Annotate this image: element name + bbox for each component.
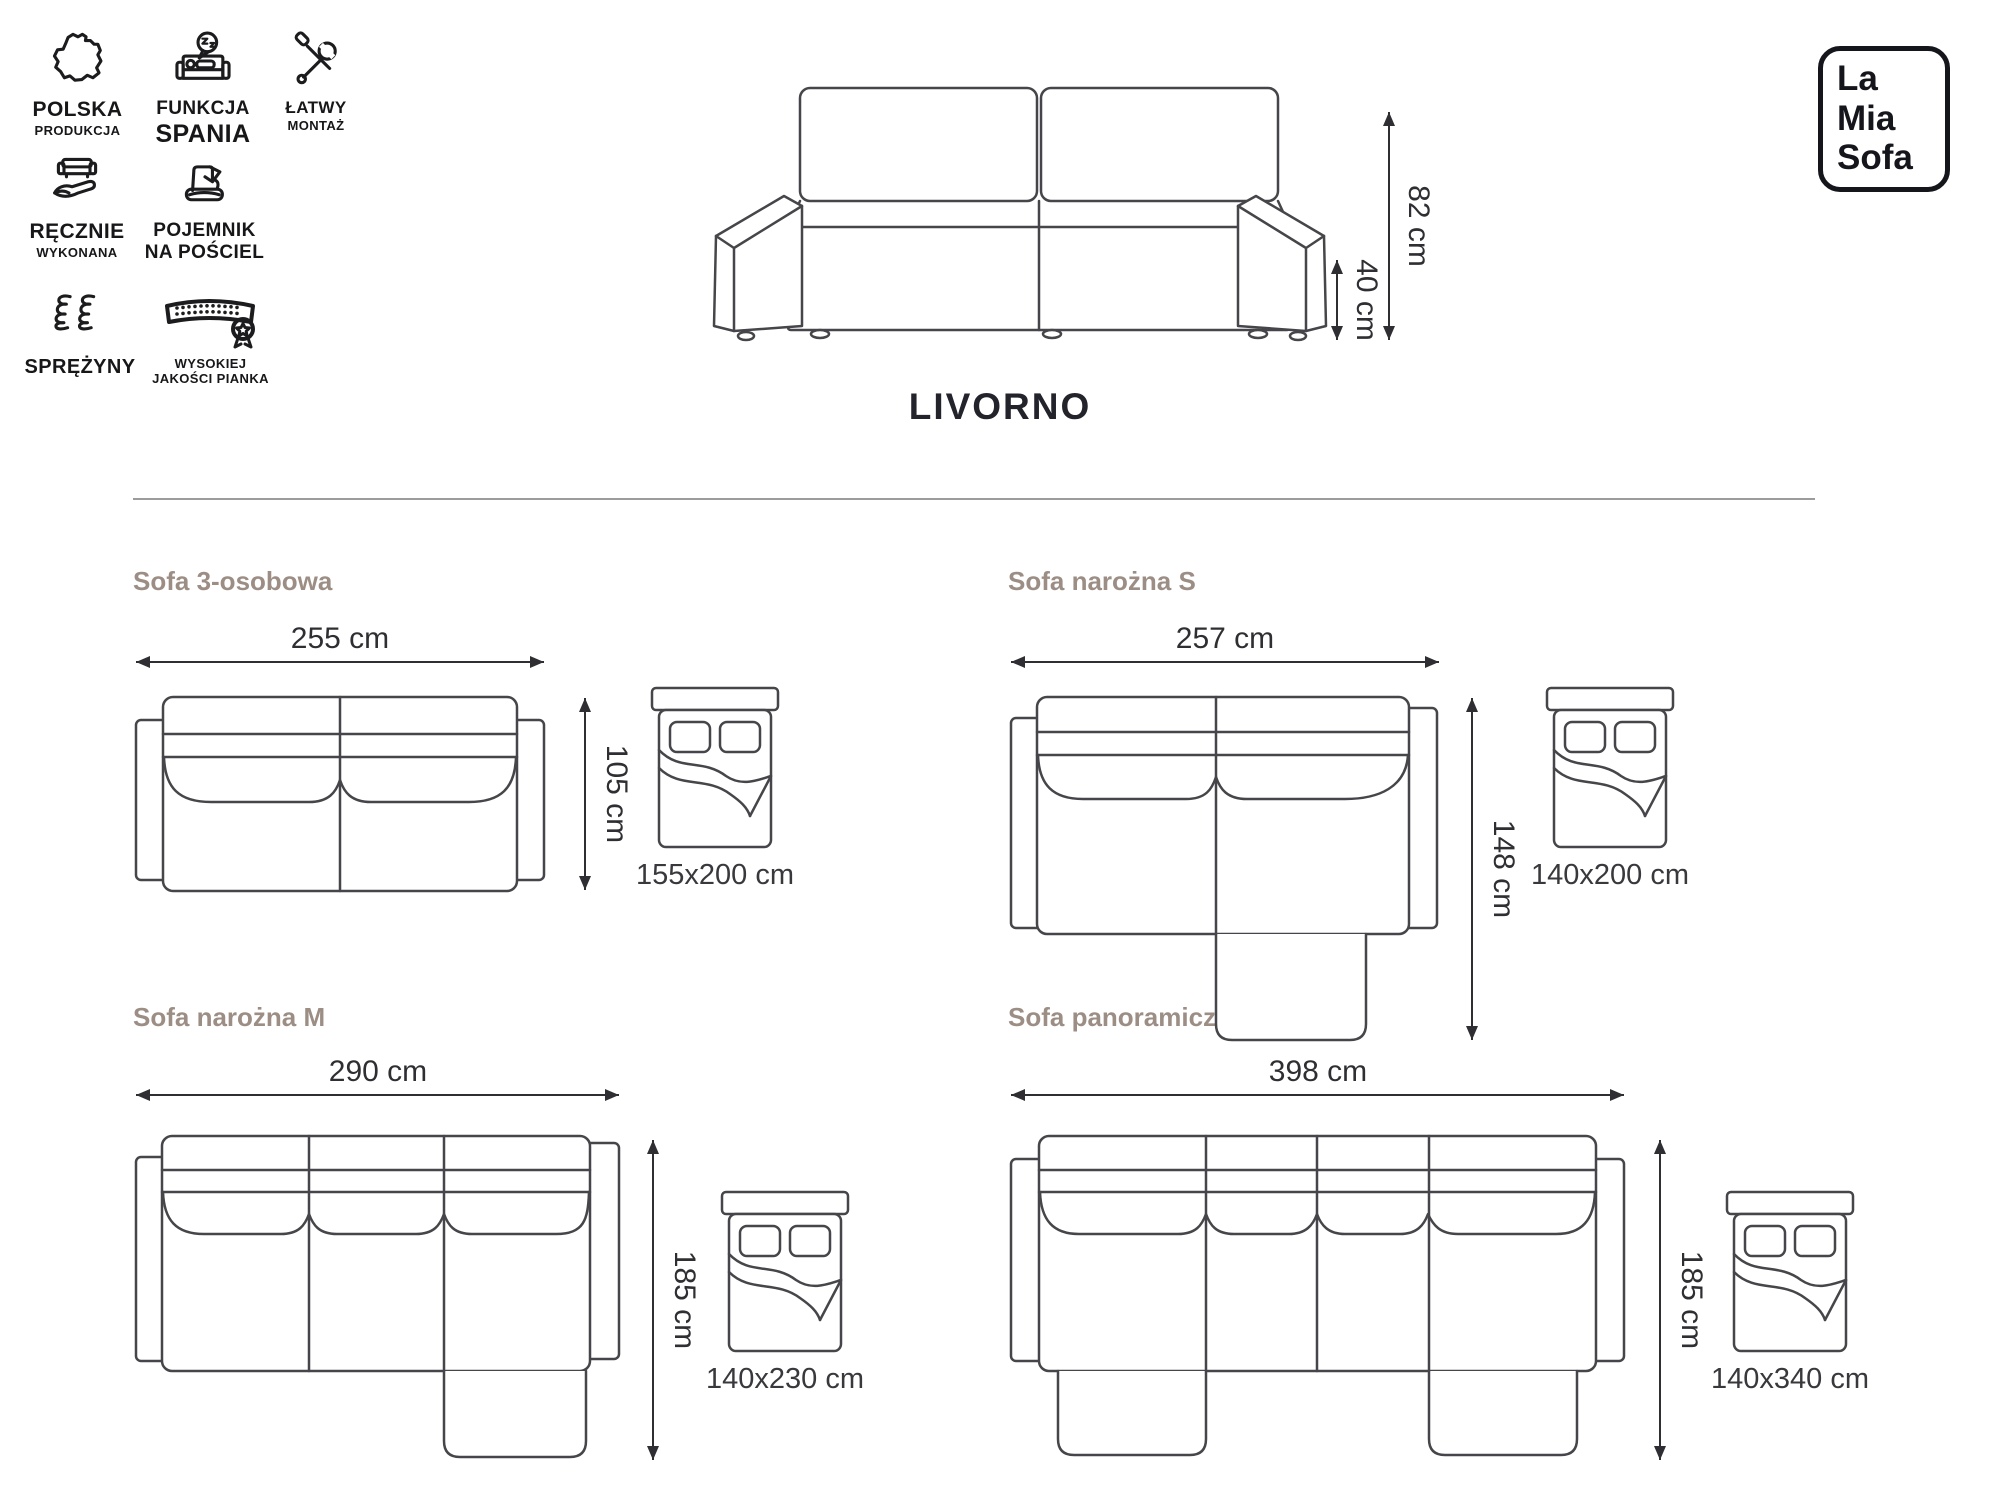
brand-line-3: Sofa <box>1837 138 1945 178</box>
sofa-narozna-m-top-view <box>136 1136 619 1457</box>
section-divider <box>133 498 1815 500</box>
spec-sheet-page: POLSKA PRODUKCJA FUNKCJA SPANIA ŁATWY <box>0 0 2000 1500</box>
width-dimension-label: 290 cm <box>329 1055 427 1088</box>
bed-size-label: 140x230 cm <box>706 1363 864 1395</box>
front-view-dimensions: 40 cm 82 cm <box>1337 112 1435 341</box>
bed-size-label: 155x200 cm <box>636 859 794 891</box>
sofa-panoramiczna-top-view <box>1011 1136 1624 1455</box>
brand-logo: La Mia Sofa <box>1818 46 1950 192</box>
sofa-front-view-drawing: 40 cm 82 cm <box>700 78 1440 350</box>
sofa-3-diagram: 255 cm 105 cm 155x200 cm <box>133 612 800 904</box>
feature-sublabel: SPANIA <box>155 120 250 150</box>
springs-icon <box>49 288 111 350</box>
bed-icon <box>1547 688 1673 847</box>
feature-foam-quality: WYSOKIEJ JAKOŚCI PIANKA <box>148 288 273 387</box>
feature-sublabel: PRODUKCJA <box>35 123 121 138</box>
feature-label: SPRĘŻYNY <box>25 356 136 380</box>
bed-icon <box>652 688 778 847</box>
width-dimension-label: 257 cm <box>1176 622 1274 655</box>
brand-line-2: Mia <box>1837 99 1945 139</box>
sofa-front-outline <box>714 88 1326 340</box>
brand-line-1: La <box>1837 59 1945 99</box>
foam-quality-icon <box>159 288 263 350</box>
feature-label: FUNKCJA <box>156 98 250 120</box>
depth-dimension-label: 185 cm <box>668 1251 701 1349</box>
seat-height-label: 40 cm <box>1350 259 1383 341</box>
product-title: LIVORNO <box>850 386 1150 428</box>
feature-sublabel: WYKONANA <box>36 245 117 260</box>
depth-dimension-label: 105 cm <box>600 745 633 843</box>
feature-easy-assembly: ŁATWY MONTAŻ <box>266 30 366 133</box>
variant-title-sofa-3: Sofa 3-osobowa <box>133 566 332 597</box>
width-dimension-label: 398 cm <box>1269 1055 1367 1088</box>
sofa-narozna-s-top-view <box>1011 697 1437 1040</box>
feature-springs: SPRĘŻYNY <box>25 288 135 380</box>
variant-title-narozna-s: Sofa narożna S <box>1008 566 1196 597</box>
sofa-narozna-s-diagram: 257 cm 148 cm 140x200 cm <box>1008 612 1708 1082</box>
variant-title-narozna-m: Sofa narożna M <box>133 1002 325 1033</box>
total-height-label: 82 cm <box>1402 185 1435 267</box>
depth-dimension-label: 148 cm <box>1487 820 1520 918</box>
sofa-narozna-m-diagram: 290 cm 185 cm 140x230 cm <box>133 1042 873 1480</box>
feature-label: ŁATWY <box>285 98 346 118</box>
feature-handmade: RĘCZNIE WYKONANA <box>22 152 132 260</box>
handmade-icon <box>46 152 108 214</box>
bed-size-label: 140x340 cm <box>1711 1363 1869 1395</box>
bedding-storage-icon <box>174 152 236 214</box>
feature-bedding-storage: POJEMNIK NA POŚCIEL <box>142 152 267 265</box>
bed-icon <box>722 1192 848 1351</box>
width-dimension-label: 255 cm <box>291 622 389 655</box>
sofa-3-top-view <box>136 697 544 891</box>
feature-label: RĘCZNIE <box>30 220 125 245</box>
feature-sublabel: MONTAŻ <box>287 118 344 133</box>
feature-label: POLSKA <box>33 98 123 123</box>
feature-poland-production: POLSKA PRODUKCJA <box>25 30 130 138</box>
easy-assembly-icon <box>285 30 347 92</box>
bed-icon <box>1727 1192 1853 1351</box>
poland-map-icon <box>47 30 109 92</box>
depth-dimension-label: 185 cm <box>1675 1251 1708 1349</box>
feature-label: WYSOKIEJ <box>175 356 247 371</box>
feature-sublabel: NA POŚCIEL <box>145 242 264 264</box>
feature-label: POJEMNIK <box>153 220 255 242</box>
sleep-function-icon <box>172 30 234 92</box>
feature-sublabel: JAKOŚCI PIANKA <box>152 371 269 386</box>
sofa-panoramiczna-diagram: 398 cm 185 cm 140x340 cm <box>1008 1042 1888 1480</box>
bed-size-label: 140x200 cm <box>1531 859 1689 891</box>
feature-sleep-function: FUNKCJA SPANIA <box>148 30 258 150</box>
